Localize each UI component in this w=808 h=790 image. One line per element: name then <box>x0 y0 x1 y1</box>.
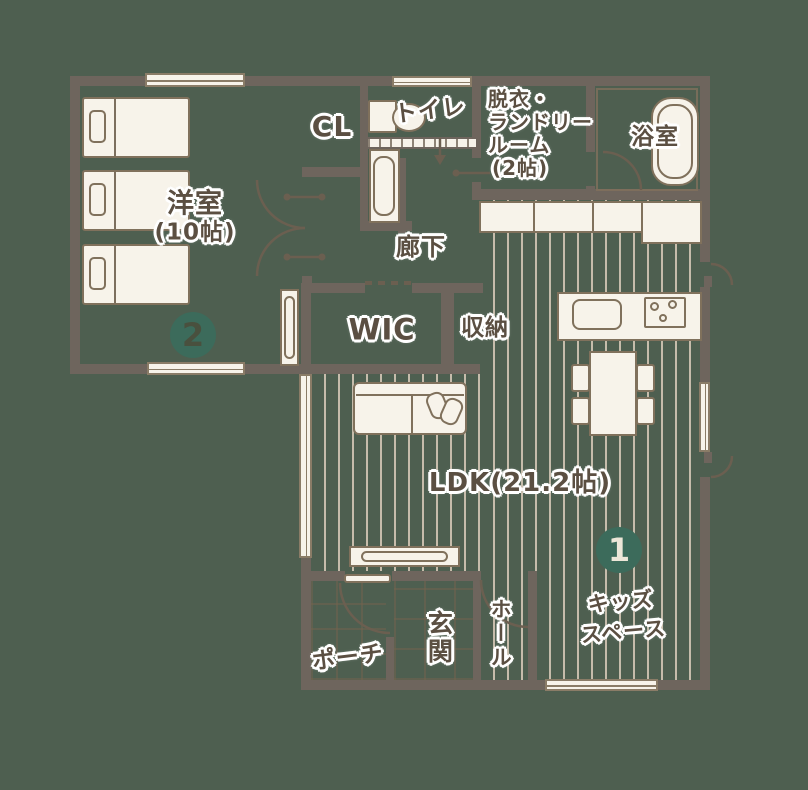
washbasin-detail <box>373 156 395 216</box>
room-label-kids: キッズ スペース <box>577 586 667 648</box>
front-door-leaf <box>344 574 391 583</box>
kitchen-stove <box>644 297 686 328</box>
back-door-leaf <box>704 276 712 287</box>
window <box>699 382 710 452</box>
arrow-dot <box>453 170 460 177</box>
door-leaf-dot <box>319 194 326 201</box>
laundry-line2: ランドリー <box>488 111 593 134</box>
sofa-backrest-line <box>356 394 464 396</box>
wall <box>386 637 394 685</box>
door-leaf-dot <box>284 254 291 261</box>
room-label-ldk: LDK(21.2帖) <box>429 469 611 499</box>
laundry-line1: 脱衣・ <box>488 88 593 111</box>
bed-blanket-line <box>114 172 116 229</box>
dining-table <box>589 351 637 436</box>
wall <box>441 290 454 374</box>
bed-blanket-line <box>114 99 116 156</box>
room-label-hall: ホール <box>488 598 512 670</box>
open-passage-dashed <box>365 281 412 285</box>
wall <box>301 571 345 581</box>
kitchen-sink <box>572 299 622 330</box>
window <box>299 374 312 558</box>
bedroom-size: (10帖) <box>154 219 235 245</box>
window <box>392 76 472 87</box>
door-leaf-dot <box>284 194 291 201</box>
wall <box>700 477 710 690</box>
floor-plan: 洋室 (10帖) CL トイレ 脱衣・ ランドリー ルーム (2帖) 浴室 廊下… <box>0 0 808 790</box>
window <box>145 73 245 87</box>
stove-burner <box>650 302 659 311</box>
room-label-toilet: トイレ <box>393 93 468 128</box>
wall <box>473 575 481 685</box>
bed-pillow <box>89 183 106 216</box>
wall <box>302 283 365 293</box>
wall <box>302 167 368 177</box>
wall <box>70 76 80 374</box>
dining-chair <box>571 397 590 425</box>
wall <box>360 86 368 230</box>
bedroom-cabinet-detail <box>284 296 295 359</box>
bedroom-name: 洋室 <box>154 188 235 219</box>
arrow-head <box>434 155 446 165</box>
wall <box>392 571 481 581</box>
room-label-wic: WIC <box>348 313 415 346</box>
wall <box>70 364 480 374</box>
marker-1: 1 <box>596 527 642 573</box>
room-label-laundry: 脱衣・ ランドリー ルーム (2帖) <box>488 88 593 180</box>
door-leaf-dot <box>319 254 326 261</box>
bed-pillow <box>89 257 106 290</box>
marker-2-number: 2 <box>182 316 204 354</box>
bed-blanket-line <box>114 246 116 303</box>
room-label-closet: CL <box>312 111 352 143</box>
dining-chair <box>636 397 655 425</box>
dining-chair <box>636 364 655 392</box>
casement-window-leaf <box>704 452 712 463</box>
wall <box>528 571 537 687</box>
cabinet-divider <box>533 203 535 231</box>
laundry-line3: ルーム <box>488 134 593 157</box>
dining-chair <box>571 364 590 392</box>
room-label-bath: 浴室 <box>631 124 679 150</box>
casement-window-arc <box>711 456 732 477</box>
room-label-bedroom: 洋室 (10帖) <box>154 188 235 245</box>
bed-pillow <box>89 110 106 143</box>
room-label-entrance: 玄関 <box>424 610 453 666</box>
marker-2: 2 <box>170 312 216 358</box>
laundry-line4: (2帖) <box>488 157 593 180</box>
window <box>545 679 658 691</box>
bedroom-door-arc <box>257 228 305 276</box>
toilet-sliding-door <box>366 137 478 149</box>
room-label-corridor: 廊下 <box>396 234 446 262</box>
counter-tall-cabinet <box>641 201 702 244</box>
tv-board-detail <box>361 551 448 562</box>
cabinet-divider <box>592 203 594 231</box>
wall <box>301 283 311 374</box>
sofa-seat-line <box>411 396 413 433</box>
marker-1-number: 1 <box>608 531 630 569</box>
stove-burner <box>659 314 667 322</box>
room-label-storage: 収納 <box>461 315 509 341</box>
bedroom-door-arc <box>257 180 305 228</box>
back-door-arc <box>711 264 732 285</box>
window <box>147 362 245 375</box>
stove-burner <box>668 300 677 309</box>
